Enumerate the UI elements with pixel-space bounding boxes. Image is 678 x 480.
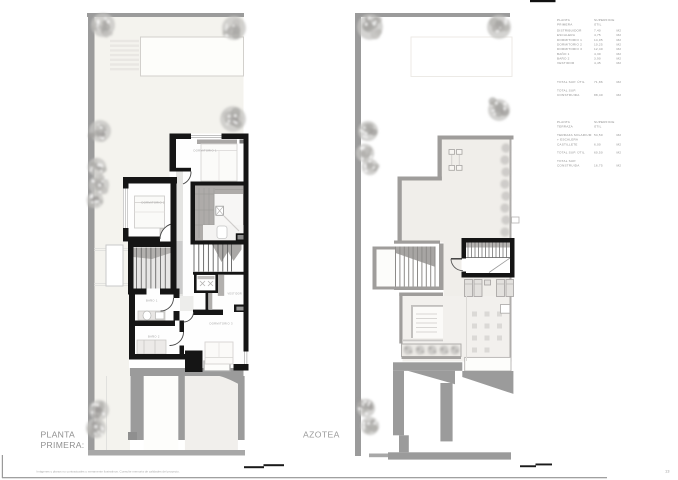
svg-text:TOTAL SUP. ÚTIL: TOTAL SUP. ÚTIL	[557, 151, 585, 155]
svg-text:VESTIDOR: VESTIDOR	[557, 61, 575, 65]
svg-text:DORMITORIO 3: DORMITORIO 3	[557, 47, 582, 51]
svg-text:4,30: 4,30	[594, 52, 601, 56]
svg-text:CASTILLETE: CASTILLETE	[557, 143, 578, 147]
svg-text:ESCALERA: ESCALERA	[557, 33, 576, 37]
svg-text:TERRAZA: TERRAZA	[557, 125, 574, 129]
svg-text:+ ESCALERA: + ESCALERA	[557, 137, 579, 141]
svg-text:M2: M2	[617, 47, 622, 51]
svg-text:13: 13	[665, 469, 670, 474]
svg-text:VESTIDOR: VESTIDOR	[228, 293, 242, 296]
svg-text:DORMITORIO 2: DORMITORIO 2	[142, 201, 165, 205]
svg-text:DORMITORIO 3: DORMITORIO 3	[210, 322, 233, 326]
svg-text:6,00: 6,00	[594, 143, 601, 147]
svg-text:DORMITORIO 2: DORMITORIO 2	[557, 43, 582, 47]
svg-text:M2: M2	[617, 133, 622, 137]
svg-text:BAÑO 1: BAÑO 1	[557, 51, 570, 56]
svg-text:M2: M2	[617, 143, 622, 147]
svg-text:DORMITORIO 1: DORMITORIO 1	[557, 38, 582, 42]
svg-text:M2: M2	[617, 43, 622, 47]
svg-text:54,50: 54,50	[594, 133, 603, 137]
svg-text:M2: M2	[617, 151, 622, 155]
svg-text:4,75: 4,75	[594, 33, 601, 37]
svg-text:71,86: 71,86	[594, 80, 603, 84]
svg-text:BAÑO 2: BAÑO 2	[557, 55, 570, 60]
svg-text:4,45: 4,45	[594, 61, 601, 65]
svg-text:PLANTA: PLANTA	[41, 429, 76, 439]
svg-text:M2: M2	[617, 61, 622, 65]
svg-text:16,75: 16,75	[594, 163, 603, 167]
svg-text:60,50: 60,50	[594, 151, 603, 155]
svg-text:ÚTIL: ÚTIL	[594, 22, 602, 26]
svg-text:12,40: 12,40	[594, 47, 603, 51]
svg-text:CONSTRUIDA: CONSTRUIDA	[557, 93, 580, 97]
svg-text:ÚTIL: ÚTIL	[594, 125, 602, 129]
svg-text:PRIMERA:: PRIMERA:	[41, 440, 85, 450]
svg-text:M2: M2	[617, 29, 622, 33]
svg-text:DISTRIBUIDOR: DISTRIBUIDOR	[557, 29, 582, 33]
svg-text:M2: M2	[617, 38, 622, 42]
svg-text:M2: M2	[617, 163, 622, 167]
svg-text:AZOTEA: AZOTEA	[303, 430, 340, 440]
svg-text:M2: M2	[617, 56, 622, 60]
svg-text:PRIMERA: PRIMERA	[557, 22, 573, 26]
svg-text:DORMITORIO 1: DORMITORIO 1	[194, 149, 217, 153]
svg-text:M2: M2	[617, 80, 622, 84]
svg-text:CONSTRUIDA: CONSTRUIDA	[557, 163, 580, 167]
svg-text:88,40: 88,40	[594, 93, 603, 97]
svg-text:Imágenes y planos no contractu: Imágenes y planos no contractuales y mer…	[37, 469, 180, 473]
svg-text:3,90: 3,90	[594, 56, 601, 60]
svg-text:M2: M2	[617, 52, 622, 56]
svg-text:14,05: 14,05	[594, 38, 603, 42]
svg-text:M2: M2	[617, 33, 622, 37]
svg-text:10,25: 10,25	[594, 43, 603, 47]
svg-text:TOTAL SUP. ÚTIL: TOTAL SUP. ÚTIL	[557, 80, 585, 84]
svg-text:7,40: 7,40	[594, 29, 601, 33]
svg-text:M2: M2	[617, 93, 622, 97]
